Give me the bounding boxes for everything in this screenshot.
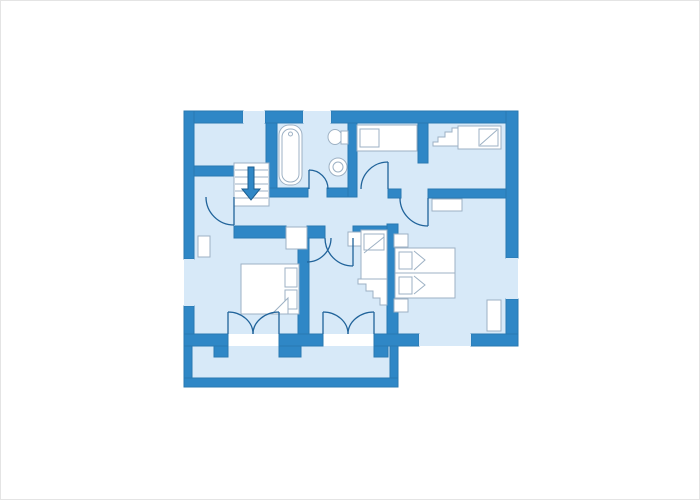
door-jamb-b xyxy=(279,346,301,357)
nightstand-top xyxy=(394,234,408,247)
left-wall-a xyxy=(184,111,194,259)
shelf-bedroom3 xyxy=(432,199,462,211)
bottom-wall-d xyxy=(471,334,518,346)
toilet-bowl xyxy=(328,130,342,145)
bunk-bed-pillow xyxy=(364,234,384,250)
window-right xyxy=(506,258,518,299)
twin-bed-1-pillow xyxy=(399,252,412,269)
window-top-1 xyxy=(243,111,265,123)
toilet-tank xyxy=(341,131,348,144)
bedroom3-top-wall xyxy=(428,189,506,198)
doorway-bedroom1 xyxy=(286,227,307,249)
door-jamb-a xyxy=(214,346,228,357)
bathtub-inner xyxy=(282,129,299,182)
bunk-nightstand xyxy=(348,232,361,246)
top-wall-c xyxy=(331,111,518,123)
bath-bottom-wall-b xyxy=(327,188,348,197)
balcony-bottom-wall xyxy=(184,378,398,387)
bathtub-faucet xyxy=(289,132,293,136)
room1-bottom-wall xyxy=(194,166,234,176)
window-top-2 xyxy=(303,111,331,123)
bottom-wall-c xyxy=(374,334,419,346)
floor-plan xyxy=(0,0,700,500)
window-sill-left xyxy=(198,236,210,257)
bath-right-wall xyxy=(348,123,357,197)
hall-wall-b xyxy=(307,226,325,238)
window-bottom xyxy=(419,334,471,346)
bed-room2-pillow xyxy=(360,129,379,147)
bath-bottom-wall-a xyxy=(269,188,308,197)
right-wall-a xyxy=(506,111,518,258)
toprooms-divider-wall xyxy=(418,123,428,163)
bottom-wall-a xyxy=(184,334,228,346)
room2-bottom-wall xyxy=(388,189,401,198)
door-jamb-c xyxy=(374,346,388,357)
bottom-wall-b xyxy=(279,334,323,346)
window-left xyxy=(184,259,194,306)
bedroom1-right-wall xyxy=(298,238,309,334)
twin-bed-2-pillow xyxy=(399,277,412,294)
hall-wall-a xyxy=(234,226,286,238)
nightstand-bottom xyxy=(394,299,408,312)
double-bed-pillow-1 xyxy=(285,268,297,287)
window-sill-right xyxy=(487,300,501,331)
sink-inner xyxy=(333,162,343,172)
floor-plan-drawing xyxy=(1,1,700,500)
top-wall-b xyxy=(265,111,303,123)
